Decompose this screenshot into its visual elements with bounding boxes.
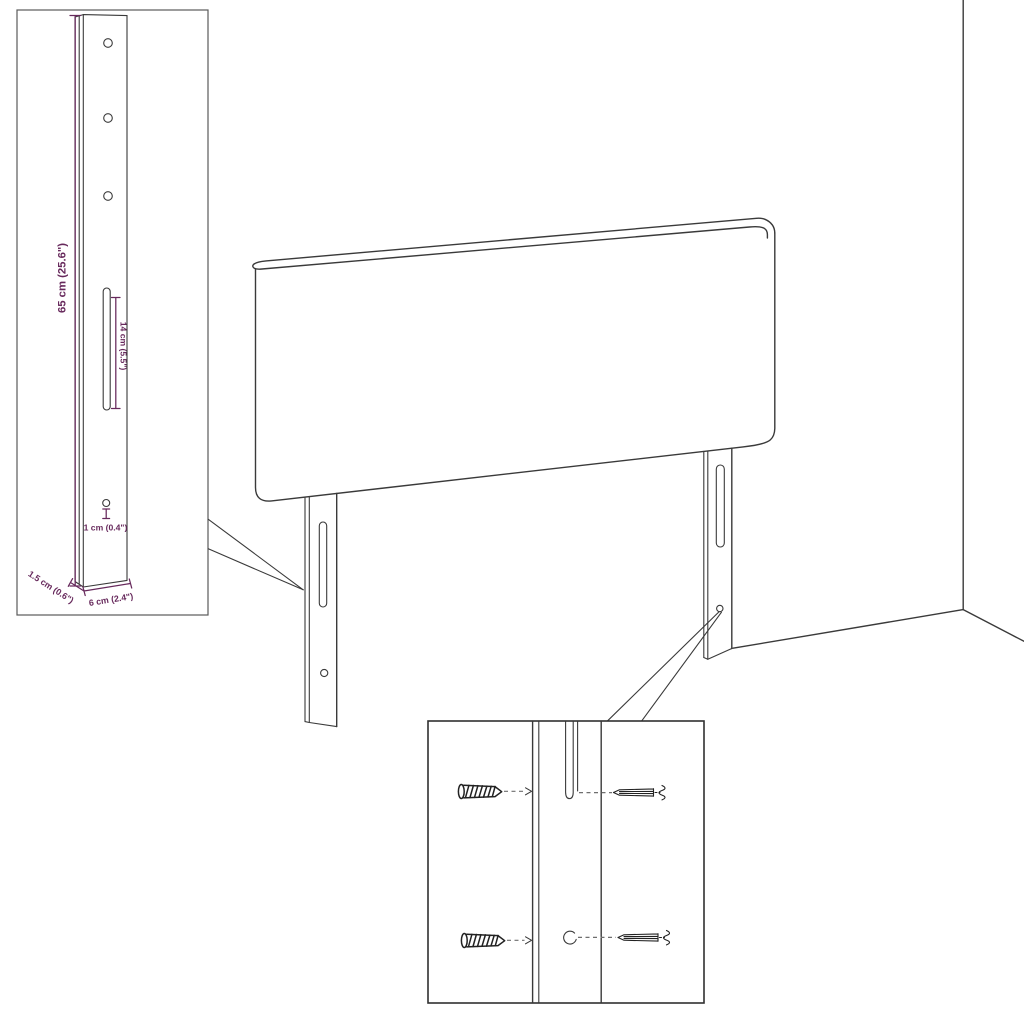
product-diagram: 65 cm (25.6") 14 cm (5.5") 1 cm (0.4") 1…: [0, 0, 1024, 1024]
right-mounting-leg: [704, 448, 732, 659]
floor-line-left: [733, 610, 963, 649]
room-corner: [733, 0, 1024, 648]
dimension-slot-length-label: 14 cm (5.5"): [119, 322, 129, 371]
diagram-canvas: 65 cm (25.6") 14 cm (5.5") 1 cm (0.4") 1…: [0, 0, 1024, 1024]
panel-outline: [256, 233, 775, 501]
hardware-callout-line-left: [608, 612, 719, 721]
leg-dimension-inset: 65 cm (25.6") 14 cm (5.5") 1 cm (0.4") 1…: [17, 10, 208, 615]
leg-slot: [716, 465, 724, 547]
leg-hole: [717, 605, 723, 611]
mounting-hardware-inset: [428, 721, 704, 1003]
hardware-callout-line-right: [642, 612, 722, 721]
dimension-leg-height-label: 65 cm (25.6"): [57, 243, 69, 313]
panel-top-edge: [253, 218, 775, 269]
floor-line-right: [963, 610, 1024, 642]
leg-slot: [319, 522, 326, 607]
leg-hole: [321, 669, 328, 676]
left-mounting-leg: [305, 494, 337, 727]
dimension-hole-offset-label: 1 cm (0.4"): [84, 523, 128, 533]
headboard-panel: [253, 218, 775, 501]
